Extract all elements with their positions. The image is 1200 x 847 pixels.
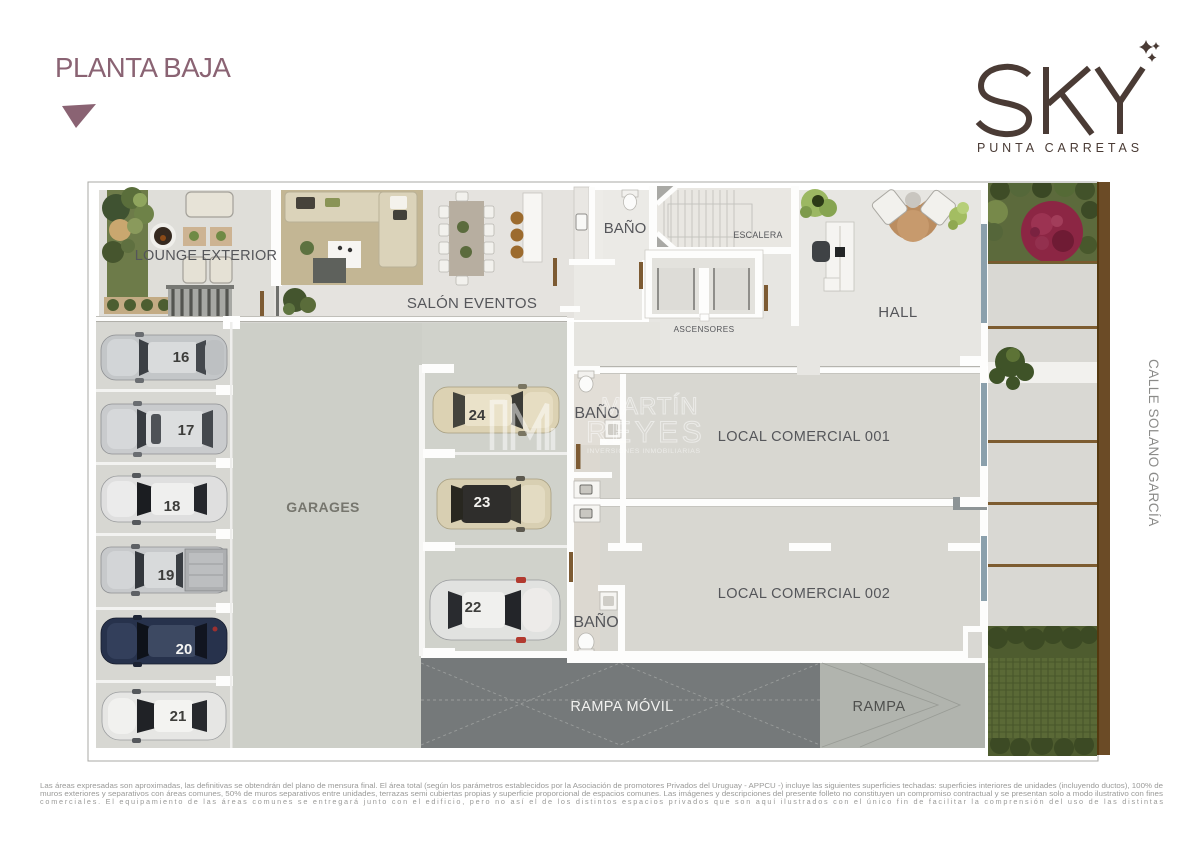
svg-text:17: 17 (178, 422, 195, 439)
svg-text:ASCENSORES: ASCENSORES (674, 325, 735, 334)
svg-text:REYES: REYES (586, 416, 705, 449)
svg-text:PUNTA CARRETAS: PUNTA CARRETAS (977, 141, 1143, 155)
svg-text:24: 24 (469, 407, 486, 424)
svg-text:HALL: HALL (878, 304, 918, 321)
svg-text:20: 20 (176, 641, 193, 658)
svg-text:SALÓN EVENTOS: SALÓN EVENTOS (407, 295, 537, 312)
svg-text:LOUNGE EXTERIOR: LOUNGE EXTERIOR (135, 248, 277, 264)
svg-text:16: 16 (173, 349, 190, 366)
svg-text:23: 23 (474, 494, 491, 511)
svg-text:BAÑO: BAÑO (573, 611, 618, 631)
svg-text:21: 21 (170, 708, 187, 725)
svg-text:RAMPA MÓVIL: RAMPA MÓVIL (570, 698, 673, 715)
svg-text:INVERSIONES INMOBILIARIAS: INVERSIONES INMOBILIARIAS (587, 448, 701, 455)
svg-text:18: 18 (164, 498, 181, 515)
svg-text:RAMPA: RAMPA (853, 699, 906, 715)
svg-text:LOCAL COMERCIAL 002: LOCAL COMERCIAL 002 (718, 586, 891, 602)
svg-text:LOCAL COMERCIAL 001: LOCAL COMERCIAL 001 (718, 429, 891, 445)
svg-text:19: 19 (158, 567, 175, 584)
svg-text:ESCALERA: ESCALERA (733, 230, 782, 240)
svg-text:GARAGES: GARAGES (286, 499, 360, 515)
svg-text:BAÑO: BAÑO (604, 220, 647, 237)
svg-text:PLANTA BAJA: PLANTA BAJA (55, 52, 231, 83)
svg-text:22: 22 (465, 599, 482, 616)
svg-text:CALLE SOLANO GARCÍA: CALLE SOLANO GARCÍA (1146, 359, 1161, 527)
